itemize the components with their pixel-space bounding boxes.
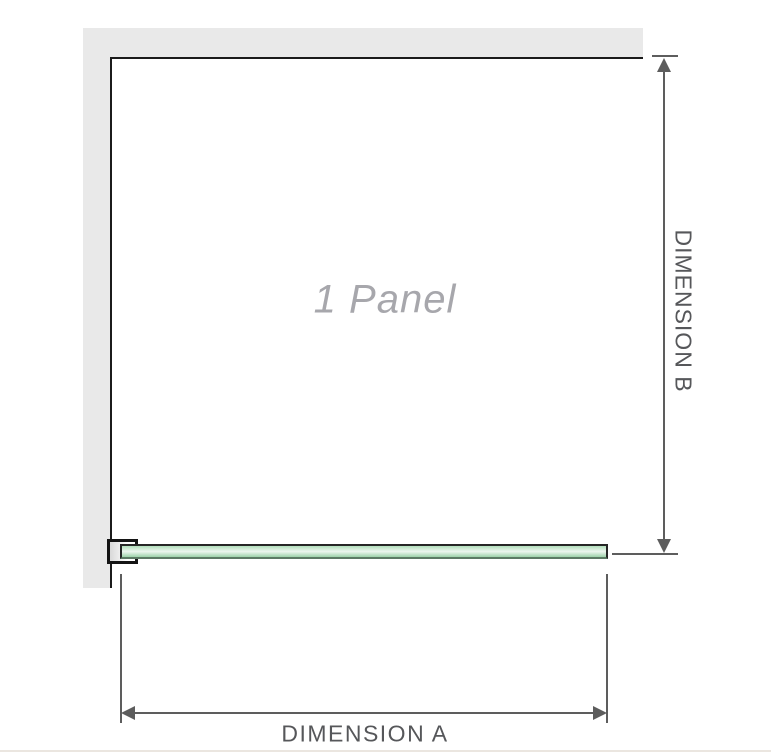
dim-a-extension-right (606, 574, 608, 723)
panel-left-edge-line (110, 57, 112, 588)
glass-panel-bar (120, 544, 608, 559)
dim-b-arrow-up-icon (657, 58, 671, 72)
dim-a-label: DIMENSION A (281, 721, 448, 748)
panel-dimension-diagram: 1 Panel DIMENSION B DIMENSION A (0, 0, 771, 755)
dim-a-arrow-left-icon (121, 706, 135, 720)
panel-count-label: 1 Panel (314, 278, 457, 323)
panel-top-edge-line (110, 57, 643, 59)
dim-a-arrow-right-icon (593, 706, 607, 720)
wall-strip-top (83, 28, 643, 57)
dim-b-top-tick (652, 55, 678, 57)
dim-a-extension-left (120, 574, 122, 723)
dim-b-arrow-down-icon (657, 539, 671, 553)
bottom-divider-line (0, 750, 771, 752)
wall-strip-left (83, 28, 110, 588)
dim-b-label: DIMENSION B (670, 229, 697, 392)
dim-b-bottom-tick (612, 553, 678, 555)
dim-a-line (126, 712, 600, 714)
dim-b-line (663, 60, 665, 550)
